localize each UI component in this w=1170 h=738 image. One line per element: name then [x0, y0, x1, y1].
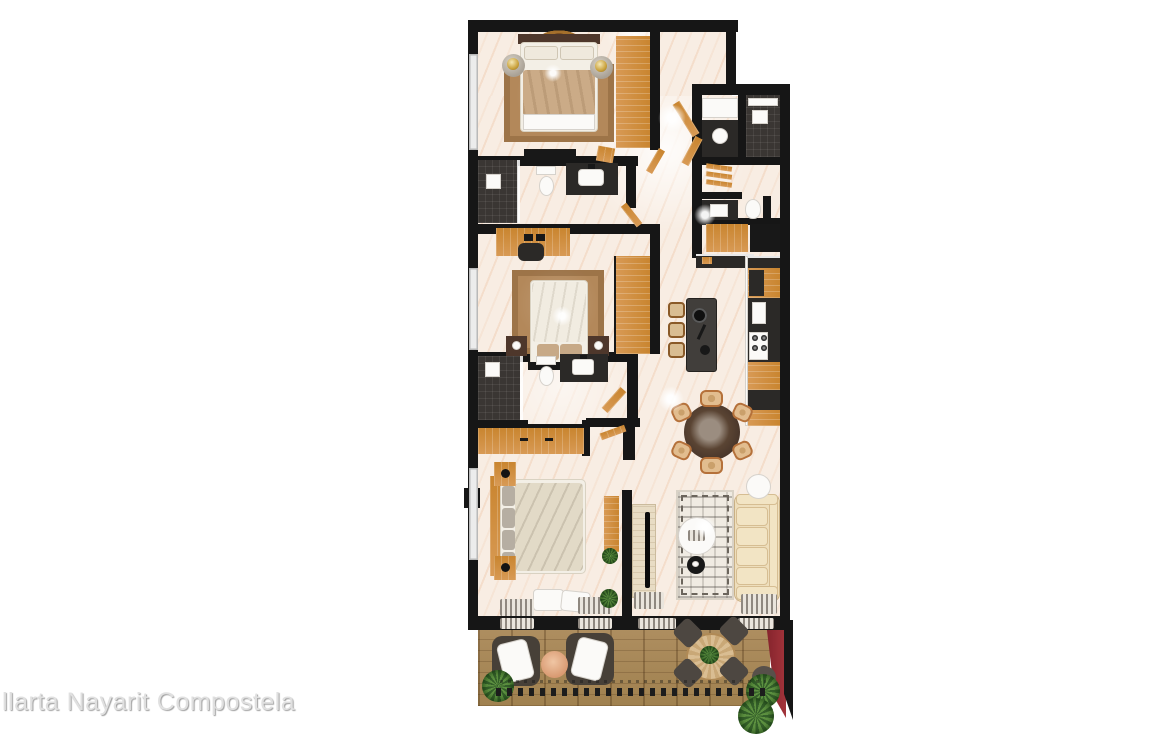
wall-bath2-right: [627, 352, 638, 427]
bath2-toilet-tank: [536, 356, 556, 365]
kitchen-peninsula-item: [702, 257, 712, 264]
bath1-faucet: [588, 164, 595, 169]
side-stool-decor: [692, 561, 699, 567]
bed1-lamp-right: [595, 60, 607, 72]
window-living-a: [638, 618, 676, 629]
bed3-plant: [600, 589, 618, 608]
bed3-mat-1: [500, 599, 534, 616]
wall-corridor-right-top: [726, 20, 736, 94]
floor-sparkle-2: [694, 204, 716, 226]
kitchen-tall-cabinet: [706, 224, 748, 252]
bed1-lamp-left: [507, 58, 519, 70]
bed3-closet-handle-1: [520, 438, 528, 441]
bed2-lamp-right: [594, 341, 603, 350]
sofa-cushion-2: [736, 527, 768, 546]
bed1-dresser: [524, 149, 576, 160]
bed3-closet-handle-2: [545, 438, 553, 441]
bed1-pillow-2: [560, 46, 594, 60]
shower-room-shelf: [748, 98, 778, 106]
fridge: [750, 224, 780, 252]
floor-sparkle-1: [658, 104, 686, 132]
window-bed3-b: [578, 618, 612, 629]
wall-block-left: [692, 95, 702, 258]
sofa-cushion-3: [736, 547, 768, 566]
terrace-railing-top: [500, 680, 766, 683]
living-mat-left: [634, 592, 664, 609]
wall-bath2-bottom-right: [586, 418, 640, 427]
bath3-toilet-bowl: [745, 199, 761, 219]
bar-stool-3: [668, 342, 685, 358]
bed3-pillow-2: [502, 508, 515, 528]
stove-burner-3: [752, 345, 758, 351]
floor-plan-image: llarta Nayarit Compostela: [0, 0, 1170, 738]
sofa-back: [769, 497, 778, 599]
bed3-closet: [478, 428, 584, 454]
sofa-cushion-1: [736, 507, 768, 526]
wall-corridor-left-low: [623, 427, 635, 460]
terrace-table-plant: [700, 646, 719, 664]
bath2-sink: [572, 359, 594, 375]
bath1-toilet-tank: [536, 166, 556, 175]
bath2-faucet: [580, 355, 587, 359]
bed3-lamp-bottom: [501, 563, 510, 572]
living-side-table: [746, 474, 771, 499]
wall-top: [468, 20, 738, 32]
bar-stool-2: [668, 322, 685, 338]
bed3-bench-plant: [602, 548, 618, 564]
window-bedroom1: [469, 54, 478, 150]
bath1-shower-head: [486, 174, 501, 189]
stove-burner-1: [752, 335, 758, 341]
bed2-desk-item-2: [536, 234, 545, 241]
wall-bed3-living: [622, 490, 632, 622]
bath1-sink: [578, 169, 604, 186]
bed2-desk-item-1: [524, 234, 533, 241]
living-mat-right: [741, 594, 777, 614]
wall-bed1-right: [650, 32, 660, 150]
bath1-shower: [478, 160, 518, 223]
bed1-foot-fold: [523, 114, 595, 130]
wall-right: [780, 86, 790, 630]
bed3-pillow-1: [502, 486, 515, 506]
window-bedroom2: [469, 268, 478, 350]
laundry-counter: [702, 98, 738, 118]
bed1-side-wood: [596, 146, 615, 164]
bed2-lamp-left: [512, 341, 521, 350]
tv-console-living: [632, 504, 656, 598]
shower-head-3: [752, 110, 768, 124]
island-basin: [700, 345, 710, 355]
kitchen-sink-inset: [749, 270, 764, 296]
bed3-bench: [604, 496, 619, 552]
floor-sparkle-5: [694, 516, 716, 538]
bath2-toilet-bowl: [539, 366, 554, 386]
window-bedroom3: [469, 468, 478, 560]
bed3-duvet: [515, 483, 583, 571]
bath1-glass: [517, 160, 520, 223]
kitchen-appliance: [752, 302, 766, 324]
wall-bath1-right: [626, 156, 636, 208]
terrace-plant-hanging: [738, 698, 774, 734]
bed1-wardrobe: [616, 36, 650, 148]
bed2-chair: [518, 243, 544, 261]
kitchen-counter-wood-2: [748, 362, 780, 390]
terrace-railing: [496, 688, 770, 696]
bed1-pillow-1: [524, 46, 558, 60]
floor-sparkle-6: [544, 64, 562, 82]
bath2-glass: [520, 356, 523, 420]
wall-bath3-right: [763, 196, 771, 222]
bar-stool-1: [668, 302, 685, 318]
bed3-lamp-top: [501, 469, 510, 478]
wall-block-top: [692, 84, 790, 95]
watermark-text: llarta Nayarit Compostela: [2, 688, 295, 717]
wall-laundry-shower: [738, 95, 746, 160]
bath2-shower-head: [485, 362, 500, 377]
washer-door: [712, 128, 728, 144]
floor-sparkle-3: [658, 386, 684, 412]
floor-sparkle-4: [552, 306, 572, 326]
dining-chair-bottom: [700, 457, 723, 474]
living-tv: [645, 512, 650, 588]
bed2-wardrobe: [616, 256, 650, 354]
bed3-pillow-3: [502, 530, 515, 550]
dining-chair-top: [700, 390, 723, 407]
stove-burner-4: [761, 345, 767, 351]
wall-block-h2: [692, 192, 742, 199]
terrace-side-table: [541, 651, 568, 678]
stove-burner-2: [761, 335, 767, 341]
sofa-cushion-4: [736, 567, 768, 585]
bed3-ottoman-1: [533, 589, 564, 611]
wall-corridor-left-mid: [650, 224, 660, 354]
window-bed3-a: [500, 618, 534, 629]
terrace-plant-left: [482, 670, 514, 702]
bath1-toilet-bowl: [539, 176, 554, 196]
island-sink: [692, 308, 707, 323]
